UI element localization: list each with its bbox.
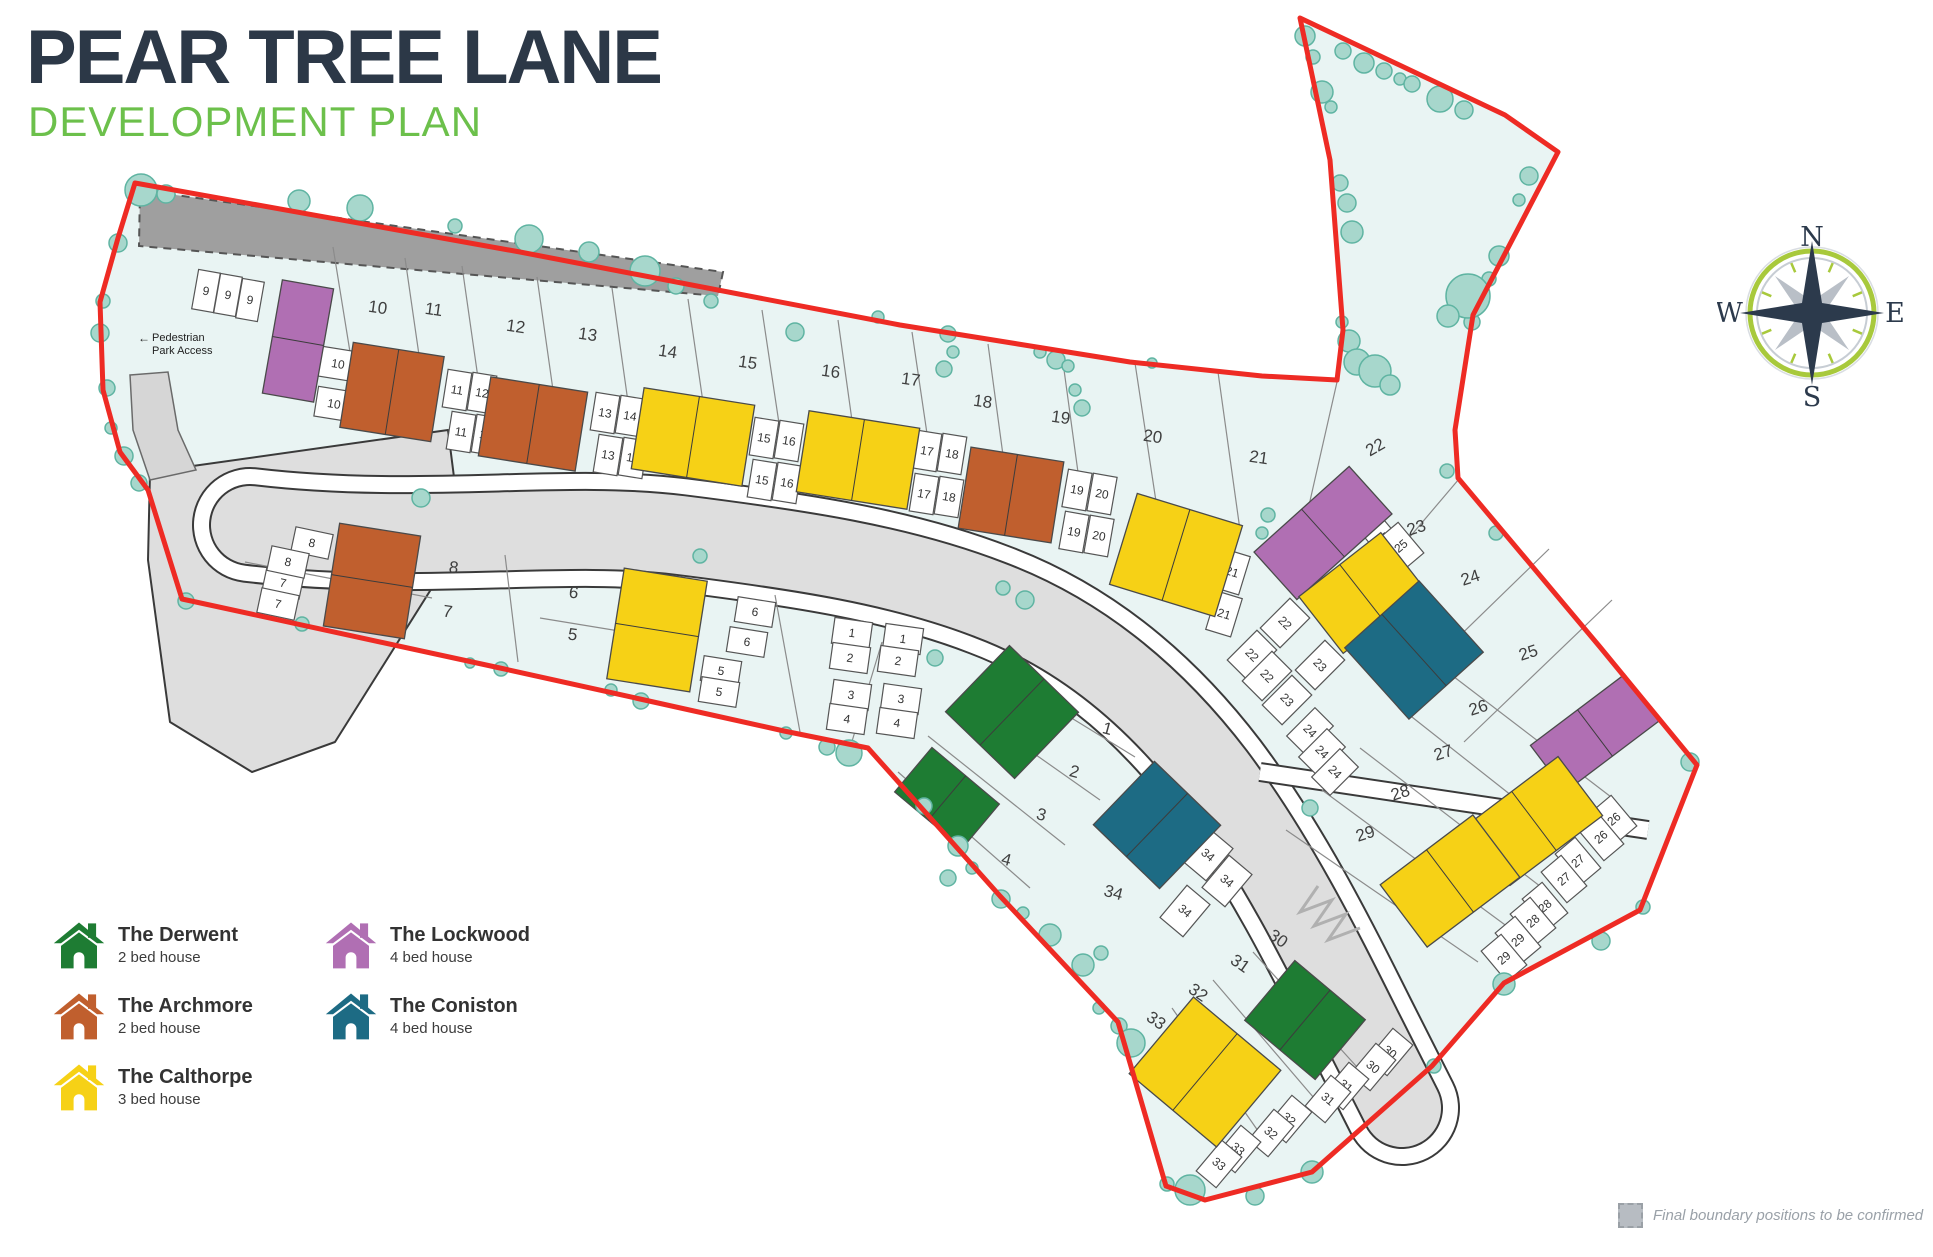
- page-subtitle: DEVELOPMENT PLAN: [28, 98, 482, 146]
- tree: [1325, 101, 1337, 113]
- parking-space-number: 15: [756, 430, 772, 446]
- plot-number: 18: [972, 391, 993, 412]
- house-footprint-archmore: [478, 377, 587, 471]
- parking-space: 15: [747, 459, 777, 500]
- boundary-note-swatch: [1618, 1203, 1643, 1228]
- legend-item-coniston: The Coniston 4 bed house: [324, 989, 596, 1060]
- tree: [347, 195, 373, 221]
- tree: [996, 581, 1010, 595]
- parking-space-number: 14: [622, 408, 638, 424]
- parking-space: 11: [446, 411, 476, 452]
- legend-house-desc: 2 bed house: [118, 1020, 253, 1037]
- parking-space: 2: [829, 642, 870, 673]
- tree: [704, 294, 718, 308]
- parking-space: 5: [698, 677, 739, 708]
- tree: [936, 361, 952, 377]
- legend-house-name: The Coniston: [390, 995, 518, 1018]
- parking-space: 6: [726, 627, 767, 658]
- parking-space: 17: [909, 473, 939, 514]
- development-plan-page: 9991010111211121314131415161516171817181…: [0, 0, 1933, 1257]
- tree: [1380, 375, 1400, 395]
- legend-house-name: The Calthorpe: [118, 1066, 252, 1089]
- parking-space-number: 13: [600, 447, 616, 463]
- parking-space: 4: [876, 707, 917, 738]
- tree: [693, 549, 707, 563]
- tree: [1094, 946, 1108, 960]
- plot-number: 16: [820, 361, 841, 382]
- boundary-note-text: Final boundary positions to be confirmed: [1653, 1207, 1923, 1224]
- plot-number: 10: [367, 297, 388, 318]
- parking-space-number: 20: [1091, 528, 1107, 544]
- parking-space-number: 10: [326, 396, 342, 412]
- parking-space-number: 18: [944, 446, 960, 462]
- tree: [1513, 194, 1525, 206]
- tree: [947, 346, 959, 358]
- plot-number: 20: [1142, 426, 1163, 447]
- tree: [1016, 591, 1034, 609]
- parking-space: 18: [937, 433, 967, 474]
- house-icon: [52, 918, 106, 972]
- parking-space-number: 19: [1066, 524, 1082, 540]
- parking-space-number: 11: [454, 424, 469, 440]
- compass-rose-icon: N E S W: [1717, 218, 1907, 408]
- tree: [412, 489, 430, 507]
- tree: [515, 225, 543, 253]
- plot-number: 17: [900, 369, 921, 390]
- tree: [927, 650, 943, 666]
- house-footprint-calthorpe: [796, 411, 919, 510]
- parking-space-number: 11: [450, 382, 465, 398]
- parking-space: 15: [749, 417, 779, 458]
- parking-space: 6: [734, 597, 775, 628]
- parking-space-number: 16: [781, 433, 797, 449]
- legend-item-derwent: The Derwent 2 bed house: [52, 918, 324, 989]
- parking-space: 2: [877, 645, 918, 676]
- tree: [1256, 527, 1268, 539]
- tree: [1335, 43, 1351, 59]
- tree: [1404, 76, 1420, 92]
- parking-space-number: 17: [916, 486, 932, 502]
- tree: [1354, 53, 1374, 73]
- legend-item-lockwood: The Lockwood 4 bed house: [324, 918, 596, 989]
- house-icon: [52, 1060, 106, 1114]
- tree: [1520, 167, 1538, 185]
- compass-west-label: W: [1717, 298, 1743, 329]
- parking-space-number: 20: [1094, 486, 1110, 502]
- legend-house-name: The Lockwood: [390, 924, 530, 947]
- tree: [1062, 360, 1074, 372]
- parking-space: 13: [593, 434, 623, 475]
- parking-space-number: 13: [597, 405, 613, 421]
- legend-house-desc: 4 bed house: [390, 1020, 518, 1037]
- tree: [1341, 221, 1363, 243]
- legend-house-name: The Derwent: [118, 924, 238, 947]
- tree: [786, 323, 804, 341]
- plot-number: 19: [1050, 407, 1071, 428]
- boundary-note: Final boundary positions to be confirmed: [1618, 1203, 1923, 1228]
- house-types-legend: The Derwent 2 bed house The Lockwood 4 b…: [52, 918, 596, 1131]
- tree: [1376, 63, 1392, 79]
- house-icon: [324, 989, 378, 1043]
- legend-house-desc: 3 bed house: [118, 1091, 252, 1108]
- house-footprint-archmore: [323, 523, 420, 639]
- house-footprint-archmore: [958, 447, 1064, 543]
- tree: [579, 242, 599, 262]
- left-arrow-icon: ←: [138, 331, 150, 345]
- plot-number: 11: [424, 299, 444, 320]
- tree: [1074, 400, 1090, 416]
- parking-space: 4: [826, 703, 867, 734]
- parking-space-number: 10: [330, 356, 346, 372]
- parking-space: 18: [934, 476, 964, 517]
- tree: [1072, 954, 1094, 976]
- house-footprint-calthorpe: [607, 568, 707, 692]
- legend-item-calthorpe: The Calthorpe 3 bed house: [52, 1060, 324, 1131]
- pedestrian-access-label: Park Access: [152, 345, 213, 357]
- tree: [1069, 384, 1081, 396]
- plot-number: 21: [1248, 447, 1269, 468]
- tree: [940, 870, 956, 886]
- parking-space-number: 16: [779, 475, 795, 491]
- tree: [1338, 194, 1356, 212]
- house-footprint-calthorpe: [631, 388, 754, 487]
- house-footprint-archmore: [340, 342, 444, 441]
- plot-number: 12: [505, 316, 526, 337]
- compass-south-label: S: [1803, 382, 1822, 408]
- legend-house-name: The Archmore: [118, 995, 253, 1018]
- parking-space-number: 15: [754, 472, 770, 488]
- tree: [1302, 800, 1318, 816]
- tree: [1455, 101, 1473, 119]
- legend-house-desc: 2 bed house: [118, 949, 238, 966]
- plot-number: 15: [737, 352, 758, 373]
- compass-north-label: N: [1800, 222, 1824, 253]
- tree: [1437, 305, 1459, 327]
- compass-east-label: E: [1885, 298, 1905, 329]
- parking-space-number: 19: [1069, 482, 1085, 498]
- house-icon: [52, 989, 106, 1043]
- parking-space-number: 18: [941, 489, 957, 505]
- plot-number: 13: [577, 324, 598, 345]
- tree: [1261, 508, 1275, 522]
- pedestrian-access-label: Pedestrian: [152, 332, 205, 344]
- parking-space: 16: [774, 420, 804, 461]
- plot-number: 14: [657, 341, 678, 362]
- page-title: PEAR TREE LANE: [26, 14, 661, 101]
- house-icon: [324, 918, 378, 972]
- parking-space-number: 17: [919, 443, 935, 459]
- tree: [448, 219, 462, 233]
- tree: [1440, 464, 1454, 478]
- parking-space: 11: [442, 369, 472, 410]
- legend-house-desc: 4 bed house: [390, 949, 530, 966]
- parking-space: 13: [590, 392, 620, 433]
- legend-item-archmore: The Archmore 2 bed house: [52, 989, 324, 1060]
- tree: [630, 256, 660, 286]
